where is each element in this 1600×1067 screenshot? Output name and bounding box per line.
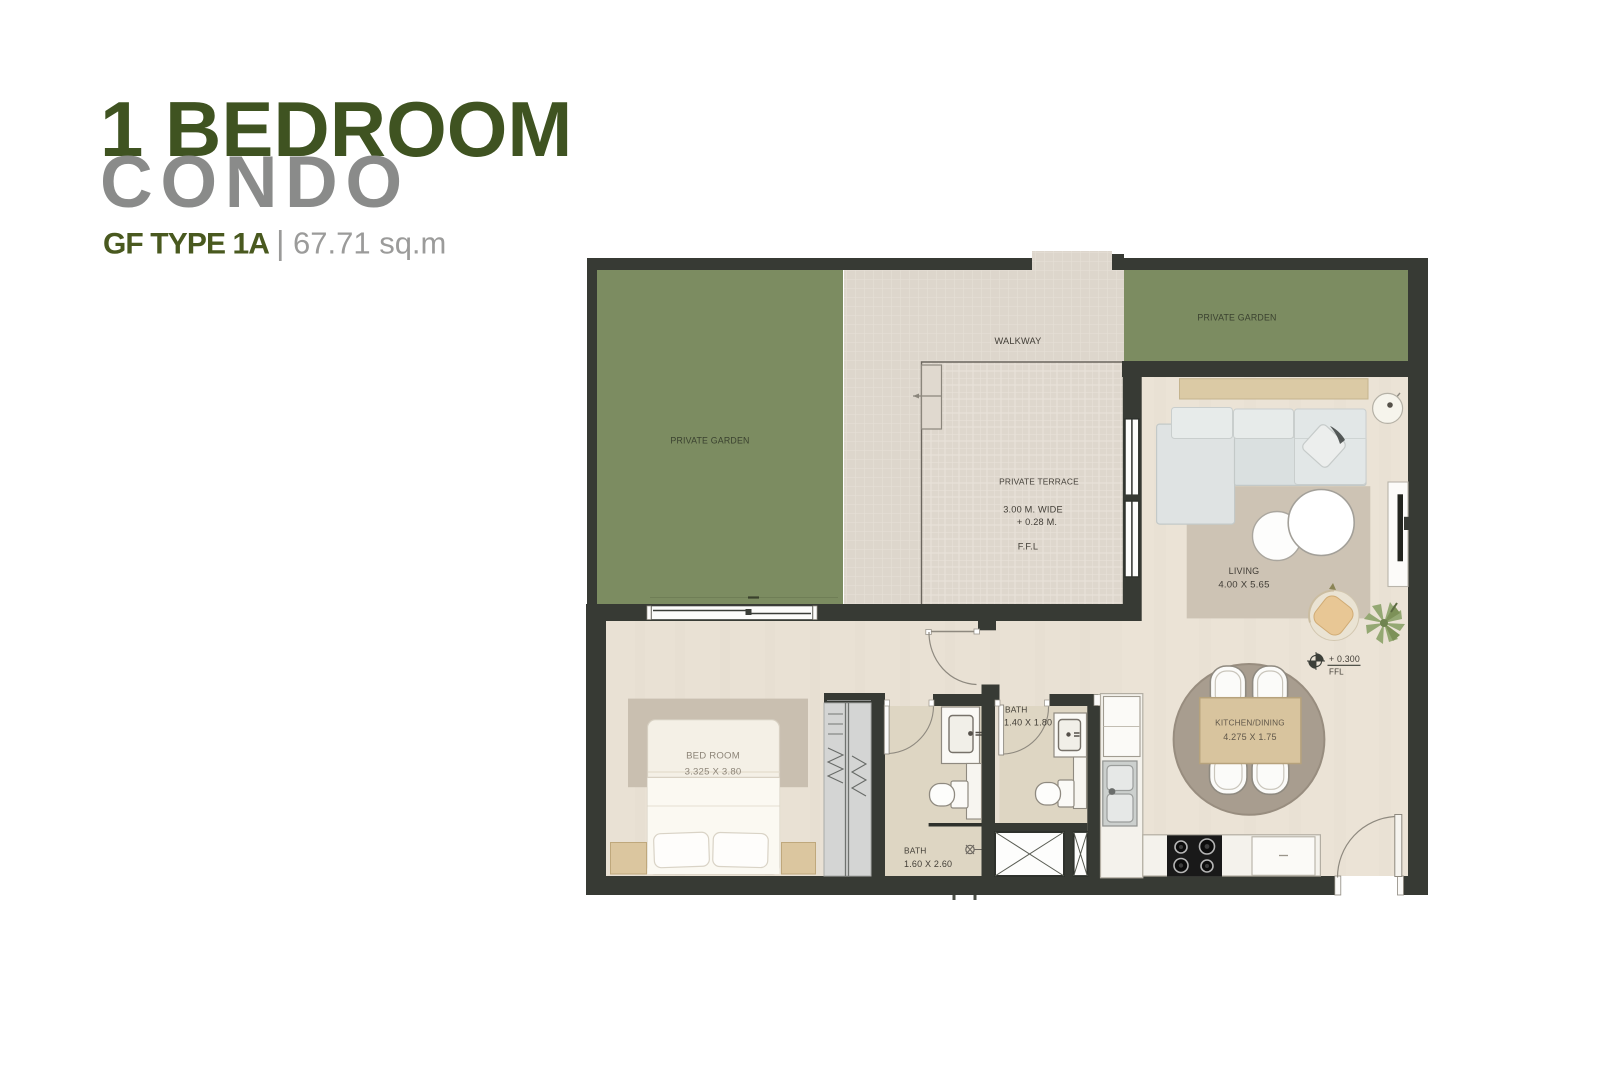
svg-text:+ 0.300: + 0.300 xyxy=(1329,654,1360,664)
svg-text:1.40 X 1.80: 1.40 X 1.80 xyxy=(1004,718,1052,728)
svg-text:FFL: FFL xyxy=(1329,668,1344,677)
svg-text:BATH: BATH xyxy=(1005,705,1028,715)
svg-text:BATH: BATH xyxy=(904,846,927,856)
svg-text:PRIVATE GARDEN: PRIVATE GARDEN xyxy=(1197,313,1276,323)
svg-text:1.60 X 2.60: 1.60 X 2.60 xyxy=(904,859,952,869)
svg-text:BED ROOM: BED ROOM xyxy=(686,751,740,762)
svg-text:3.325 X 3.80: 3.325 X 3.80 xyxy=(685,767,742,778)
svg-text:4.00 X 5.65: 4.00 X 5.65 xyxy=(1218,580,1269,591)
svg-text:KITCHEN/DINING: KITCHEN/DINING xyxy=(1215,719,1285,728)
svg-text:WALKWAY: WALKWAY xyxy=(995,336,1042,346)
svg-text:F.F.L: F.F.L xyxy=(1018,542,1038,552)
svg-text:PRIVATE TERRACE: PRIVATE TERRACE xyxy=(999,477,1079,487)
svg-text:LIVING: LIVING xyxy=(1229,566,1260,576)
svg-text:3.00 M. WIDE: 3.00 M. WIDE xyxy=(1003,505,1063,515)
svg-text:PRIVATE GARDEN: PRIVATE GARDEN xyxy=(670,436,749,446)
svg-text:4.275 X 1.75: 4.275 X 1.75 xyxy=(1223,732,1276,742)
svg-text:+ 0.28 M.: + 0.28 M. xyxy=(1017,517,1057,527)
